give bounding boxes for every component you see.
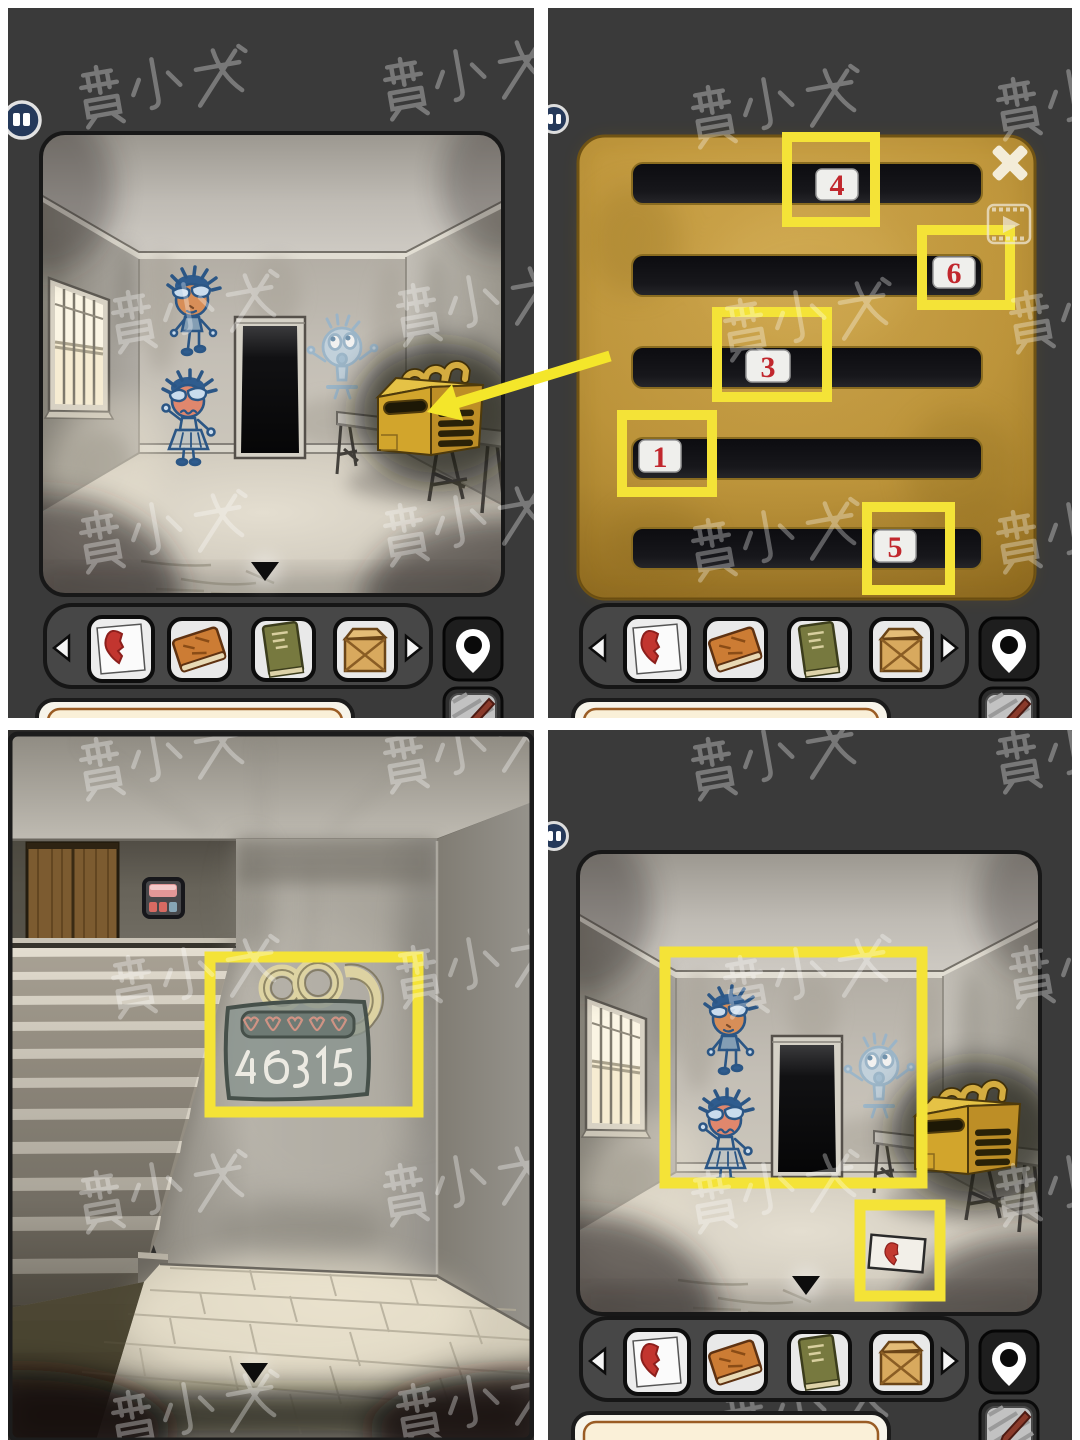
svg-text:5: 5 [888,531,903,564]
svg-text:6: 6 [947,257,962,290]
svg-text:4: 4 [830,169,845,202]
svg-text:1: 1 [653,441,668,474]
